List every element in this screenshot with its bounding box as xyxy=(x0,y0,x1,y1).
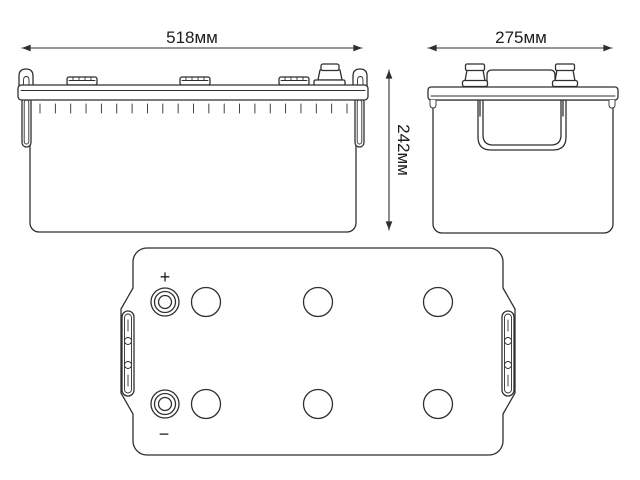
top-right-handle-bar xyxy=(502,311,514,396)
front-right-lid-tab xyxy=(353,69,367,87)
side-body-outline xyxy=(433,100,613,233)
battery-dimension-diagram: 518мм 242мм xyxy=(0,0,640,480)
front-terminal-post xyxy=(314,64,345,86)
width-dimension: 518мм xyxy=(22,28,362,48)
vent-plug xyxy=(192,390,221,419)
plus-symbol: + xyxy=(160,267,171,287)
diagram-canvas: 518мм 242мм xyxy=(0,0,640,480)
vent-plug xyxy=(304,390,333,419)
vent-plug xyxy=(304,288,333,317)
front-body-outline xyxy=(30,99,356,232)
height-dimension: 242мм xyxy=(389,70,413,230)
front-right-handle-rod xyxy=(355,97,364,147)
front-vent-cap-3 xyxy=(279,77,309,85)
height-dimension-label: 242мм xyxy=(394,124,413,176)
front-cell-ticks xyxy=(40,104,347,113)
top-body-outline xyxy=(121,248,515,455)
front-view: 518мм xyxy=(18,28,368,232)
minus-symbol: − xyxy=(159,424,170,444)
vent-plug xyxy=(424,288,453,317)
depth-dimension: 275мм xyxy=(428,28,612,48)
top-left-handle-bar xyxy=(122,311,134,396)
width-dimension-label: 518мм xyxy=(166,28,218,47)
depth-dimension-label: 275мм xyxy=(495,28,547,47)
side-terminal-post-left xyxy=(463,64,488,87)
vent-plug xyxy=(424,390,453,419)
side-center-cover xyxy=(487,70,555,88)
side-view: 275мм xyxy=(428,28,618,233)
front-left-lid-tab xyxy=(19,69,33,87)
front-vent-cap-2 xyxy=(180,77,210,85)
side-lid xyxy=(428,87,618,100)
front-vent-cap-1 xyxy=(67,77,97,85)
front-lid xyxy=(18,85,368,100)
side-lid-hook-right xyxy=(609,100,615,108)
side-terminal-post-right xyxy=(553,64,578,87)
top-view: + − xyxy=(121,248,515,455)
vent-plug xyxy=(192,288,221,317)
front-left-handle-rod xyxy=(22,97,31,147)
side-lid-hook-left xyxy=(430,100,436,108)
